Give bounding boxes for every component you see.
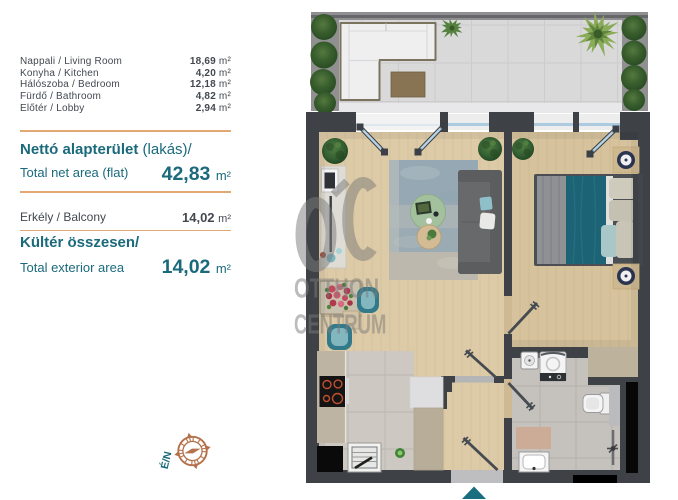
svg-text:OTTHON: OTTHON bbox=[294, 273, 379, 304]
svg-text:É/N: É/N bbox=[158, 450, 175, 470]
svg-text:CENTRUM: CENTRUM bbox=[294, 310, 386, 341]
